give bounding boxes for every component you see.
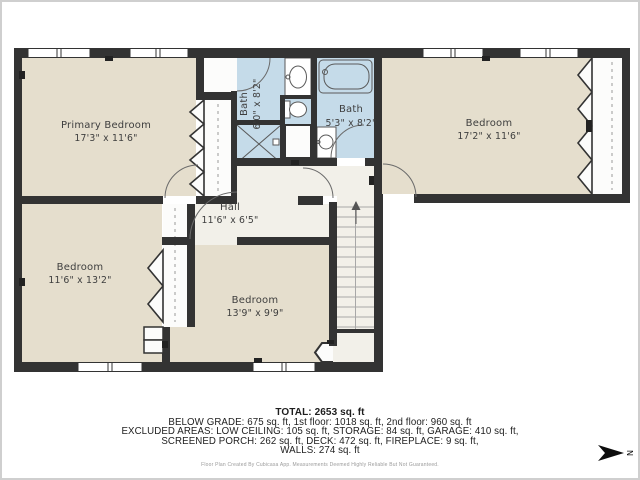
hall-doorway-floor: [190, 237, 237, 245]
linen-alcove: [285, 125, 311, 158]
bedroom-bottom-label: Bedroom: [232, 295, 279, 306]
bath-left-vestibule: [204, 58, 231, 92]
wall-vestibule-west: [196, 58, 204, 100]
bath-right-dims: 5'3" x 8'2": [326, 118, 377, 129]
wall-outer-bottom: [14, 362, 383, 372]
floor-plan-page: Primary Bedroom 17'3" x 11'6" Bedroom 17…: [0, 0, 640, 480]
bath-left-dims: 6'0" x 8'2": [252, 79, 263, 130]
hall-corridor-floor: [237, 166, 374, 196]
wall-stairwell-west: [329, 202, 337, 346]
primary-bedroom-dims: 17'3" x 11'6": [74, 133, 137, 144]
window: [130, 49, 188, 58]
wall-bath-left-stub-v: [280, 95, 285, 163]
sink-counter-icon: [285, 58, 311, 96]
wall-primary-bottom-west: [14, 196, 163, 204]
hall-dims: 11'6" x 6'5": [201, 215, 258, 226]
wall-bath-left-bottom: [231, 158, 317, 166]
wall-outer-right: [622, 48, 630, 203]
wall-stairwell-east: [374, 194, 383, 372]
window: [78, 363, 142, 372]
bath-left-label: Bath: [239, 92, 250, 116]
disclaimer: Floor Plan Created By Cubicasa App. Meas…: [0, 461, 640, 471]
bedroom-right-dims: 17'2" x 11'6": [457, 131, 520, 142]
room-fills: [22, 58, 622, 362]
bedroom-right-label: Bedroom: [466, 118, 513, 129]
wall-bath-right-bottom-east: [365, 158, 374, 166]
bedroom-left-dims: 11'6" x 13'2": [48, 275, 111, 286]
window: [520, 49, 578, 58]
wall-bath-left-west: [231, 91, 237, 196]
bedroom-left-label: Bedroom: [57, 262, 104, 273]
primary-bedroom-label: Primary Bedroom: [61, 120, 151, 131]
wall-outer-left: [14, 48, 22, 372]
wall-bath-right-bottom-west: [317, 158, 337, 166]
bedroom-right-closet: [592, 58, 622, 194]
hall-connector-floor: [237, 196, 298, 204]
window: [423, 49, 483, 58]
storage-box: [144, 340, 163, 353]
wall-bedroom-right-bottom: [414, 194, 630, 203]
wall-left-closet-east: [187, 204, 195, 327]
storage-box: [144, 327, 163, 340]
wall-bath-left-stub-h: [280, 95, 311, 99]
bath-left-door-opening: [231, 58, 237, 91]
wall-hall-south-west: [162, 237, 190, 245]
wall-vestibule-south: [204, 92, 231, 100]
area-summary: TOTAL: 2653 sq. ft BELOW GRADE: 675 sq. …: [0, 408, 640, 471]
summary-line: WALLS: 274 sq. ft: [0, 446, 640, 456]
window: [28, 49, 90, 58]
wall-between-baths: [311, 58, 317, 158]
window: [253, 363, 315, 372]
wall-hall-south-east: [237, 237, 337, 245]
stair-landing-floor: [333, 333, 374, 362]
hall-label: Hall: [220, 202, 240, 213]
toilet-bowl-icon: [290, 102, 307, 117]
bath-right-label: Bath: [339, 104, 363, 115]
stair-bottom-edge: [337, 329, 374, 333]
bedroom-bottom-dims: 13'9" x 9'9": [226, 308, 283, 319]
wall-corridor-stub: [298, 196, 323, 205]
